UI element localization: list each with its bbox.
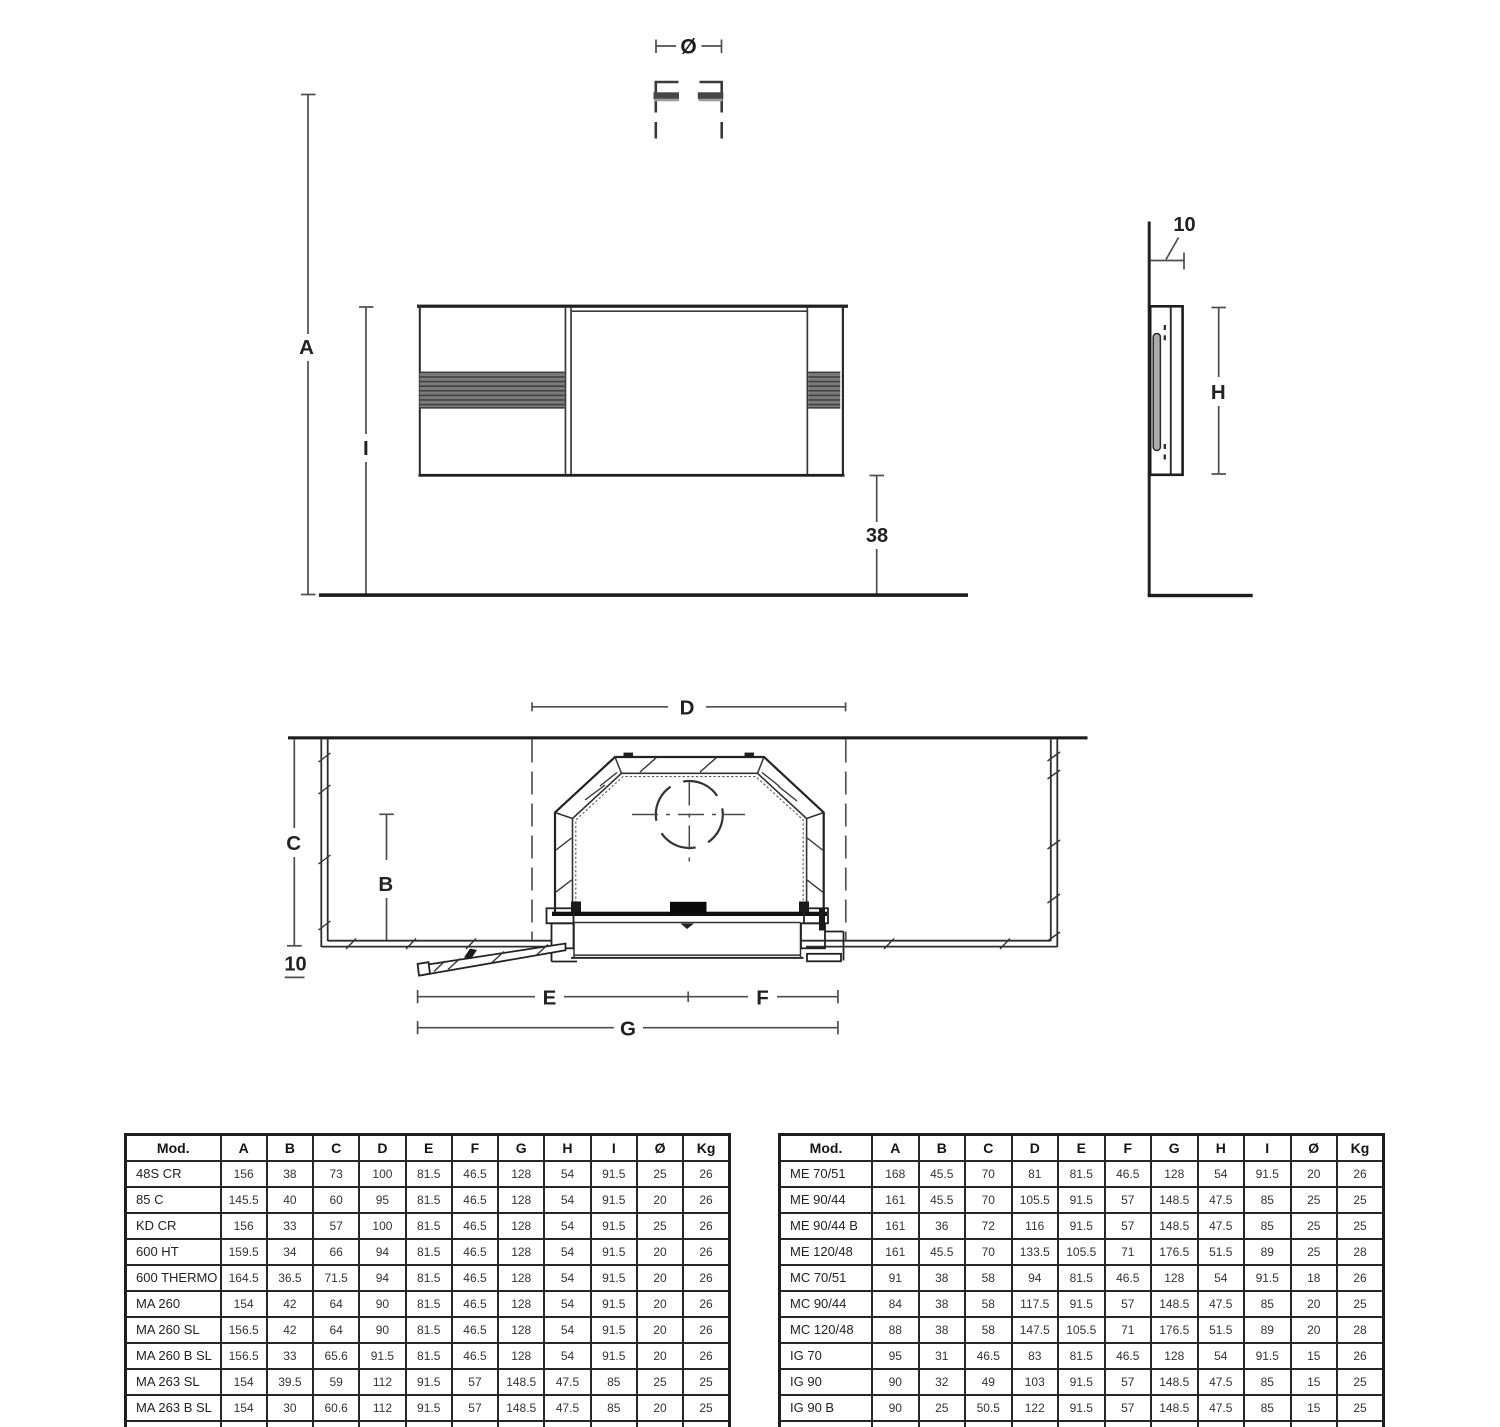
svg-text:10: 10: [1173, 214, 1195, 236]
svg-text:A: A: [299, 336, 314, 359]
svg-text:Ø: Ø: [680, 36, 696, 59]
svg-text:B: B: [378, 873, 393, 896]
svg-text:F: F: [756, 987, 769, 1010]
svg-text:C: C: [286, 832, 301, 855]
svg-text:D: D: [680, 697, 695, 720]
svg-text:38: 38: [866, 525, 888, 547]
svg-text:E: E: [543, 987, 557, 1010]
svg-text:G: G: [620, 1018, 636, 1041]
svg-text:I: I: [363, 437, 369, 460]
svg-text:10: 10: [284, 954, 306, 976]
svg-text:H: H: [1211, 381, 1226, 404]
